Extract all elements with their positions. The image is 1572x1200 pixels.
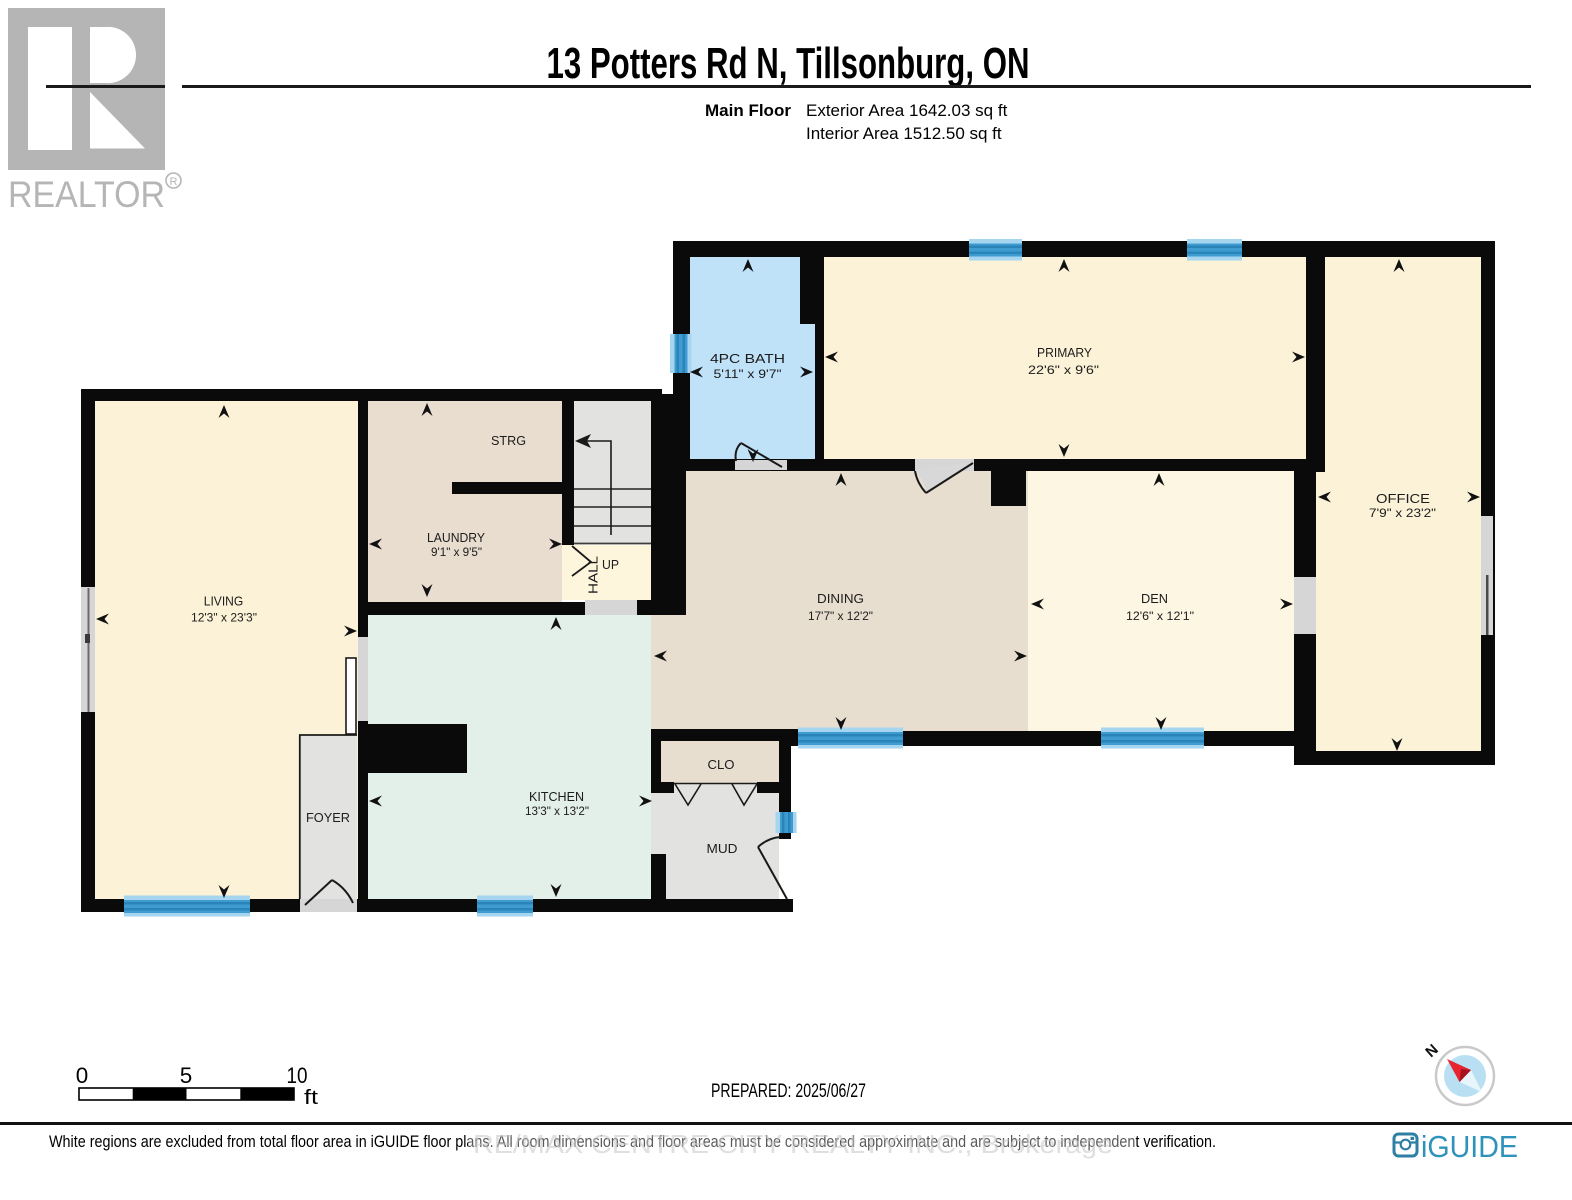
svg-text:LIVING: LIVING xyxy=(204,594,244,609)
svg-text:HALL: HALL xyxy=(586,556,601,594)
svg-text:12'6" x 12'1": 12'6" x 12'1" xyxy=(1126,609,1194,623)
svg-text:DEN: DEN xyxy=(1141,591,1168,606)
svg-text:LAUNDRY: LAUNDRY xyxy=(427,530,485,545)
svg-text:13 Potters Rd N, Tillsonburg,: 13 Potters Rd N, Tillsonburg, ON xyxy=(547,39,1030,88)
svg-text:13'3" x 13'2": 13'3" x 13'2" xyxy=(525,804,589,818)
svg-text:Main Floor: Main Floor xyxy=(705,101,791,120)
svg-text:OFFICE: OFFICE xyxy=(1376,491,1430,506)
svg-text:UP: UP xyxy=(602,557,619,572)
svg-text:Interior Area 1512.50 sq ft: Interior Area 1512.50 sq ft xyxy=(806,124,1002,143)
svg-text:4PC BATH: 4PC BATH xyxy=(710,351,785,366)
svg-text:5: 5 xyxy=(180,1063,193,1088)
svg-text:KITCHEN: KITCHEN xyxy=(529,789,584,804)
svg-text:7'9" x 23'2": 7'9" x 23'2" xyxy=(1369,506,1436,520)
svg-text:DINING: DINING xyxy=(817,591,864,606)
svg-text:9'1" x 9'5": 9'1" x 9'5" xyxy=(431,545,482,559)
svg-text:12'3" x 23'3": 12'3" x 23'3" xyxy=(191,611,257,625)
svg-text:5'11" x 9'7": 5'11" x 9'7" xyxy=(714,367,782,381)
svg-text:PRIMARY: PRIMARY xyxy=(1037,345,1092,360)
svg-text:FOYER: FOYER xyxy=(306,810,350,825)
svg-text:ft: ft xyxy=(304,1087,319,1109)
svg-text:10: 10 xyxy=(287,1063,308,1088)
svg-text:22'6" x 9'6": 22'6" x 9'6" xyxy=(1028,363,1099,377)
svg-text:0: 0 xyxy=(76,1063,89,1088)
svg-text:17'7" x 12'2": 17'7" x 12'2" xyxy=(808,609,873,623)
svg-text:Exterior Area 1642.03 sq ft: Exterior Area 1642.03 sq ft xyxy=(806,101,1008,120)
svg-text:PREPARED: 2025/06/27: PREPARED: 2025/06/27 xyxy=(711,1081,866,1102)
svg-text:iGUIDE: iGUIDE xyxy=(1421,1129,1518,1164)
svg-text:RE/MAX CENTRE CITY REALTY INC.: RE/MAX CENTRE CITY REALTY INC., Brokerag… xyxy=(473,1129,1113,1159)
svg-text:CLO: CLO xyxy=(708,757,735,772)
svg-text:R: R xyxy=(170,176,178,188)
svg-text:REALTOR: REALTOR xyxy=(8,174,165,215)
svg-text:MUD: MUD xyxy=(707,841,738,856)
svg-text:STRG: STRG xyxy=(491,433,526,448)
